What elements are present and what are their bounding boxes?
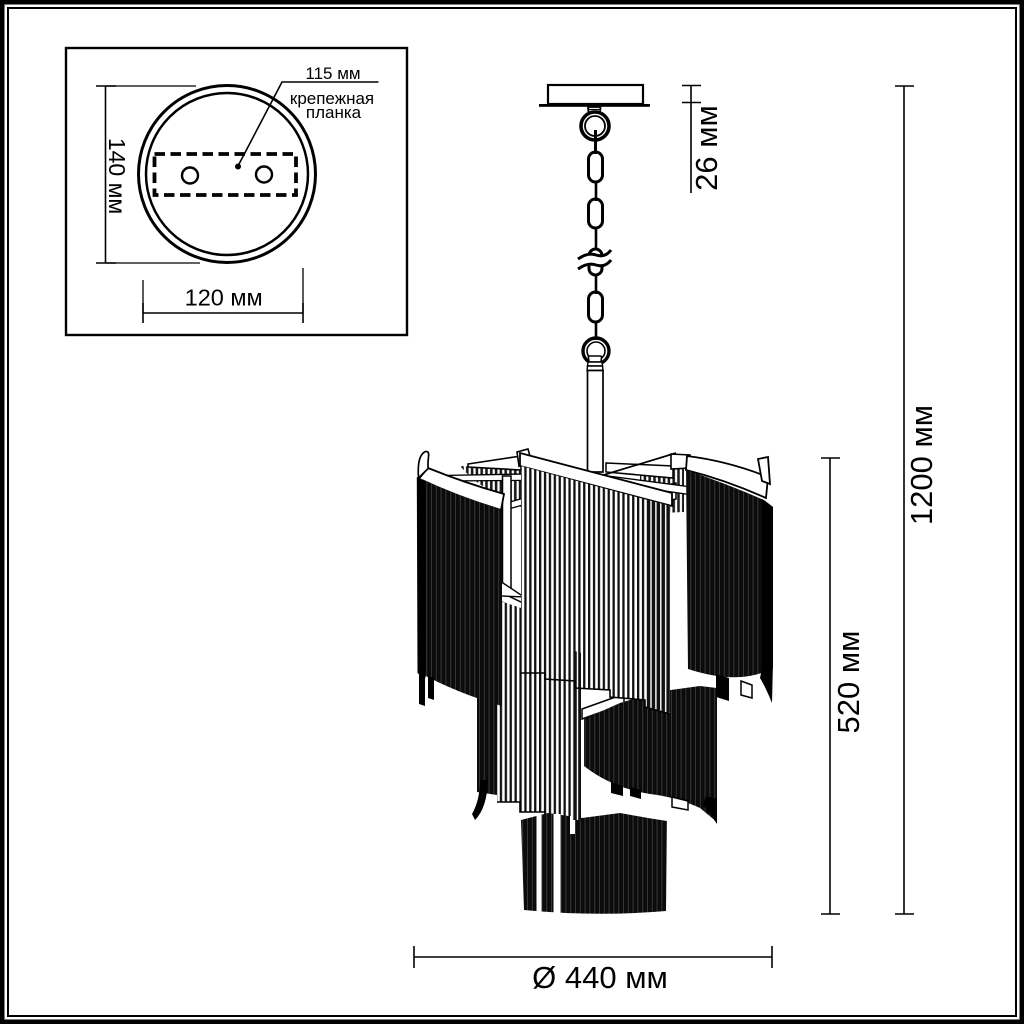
svg-text:26 мм: 26 мм	[689, 105, 724, 191]
svg-text:115 мм: 115 мм	[305, 64, 360, 83]
svg-text:планка: планка	[306, 103, 362, 122]
svg-text:520 мм: 520 мм	[831, 631, 866, 734]
svg-text:1200 мм: 1200 мм	[904, 405, 939, 525]
svg-text:Ø 440 мм: Ø 440 мм	[532, 960, 668, 995]
svg-text:140 мм: 140 мм	[104, 138, 130, 214]
svg-text:120 мм: 120 мм	[185, 285, 263, 311]
